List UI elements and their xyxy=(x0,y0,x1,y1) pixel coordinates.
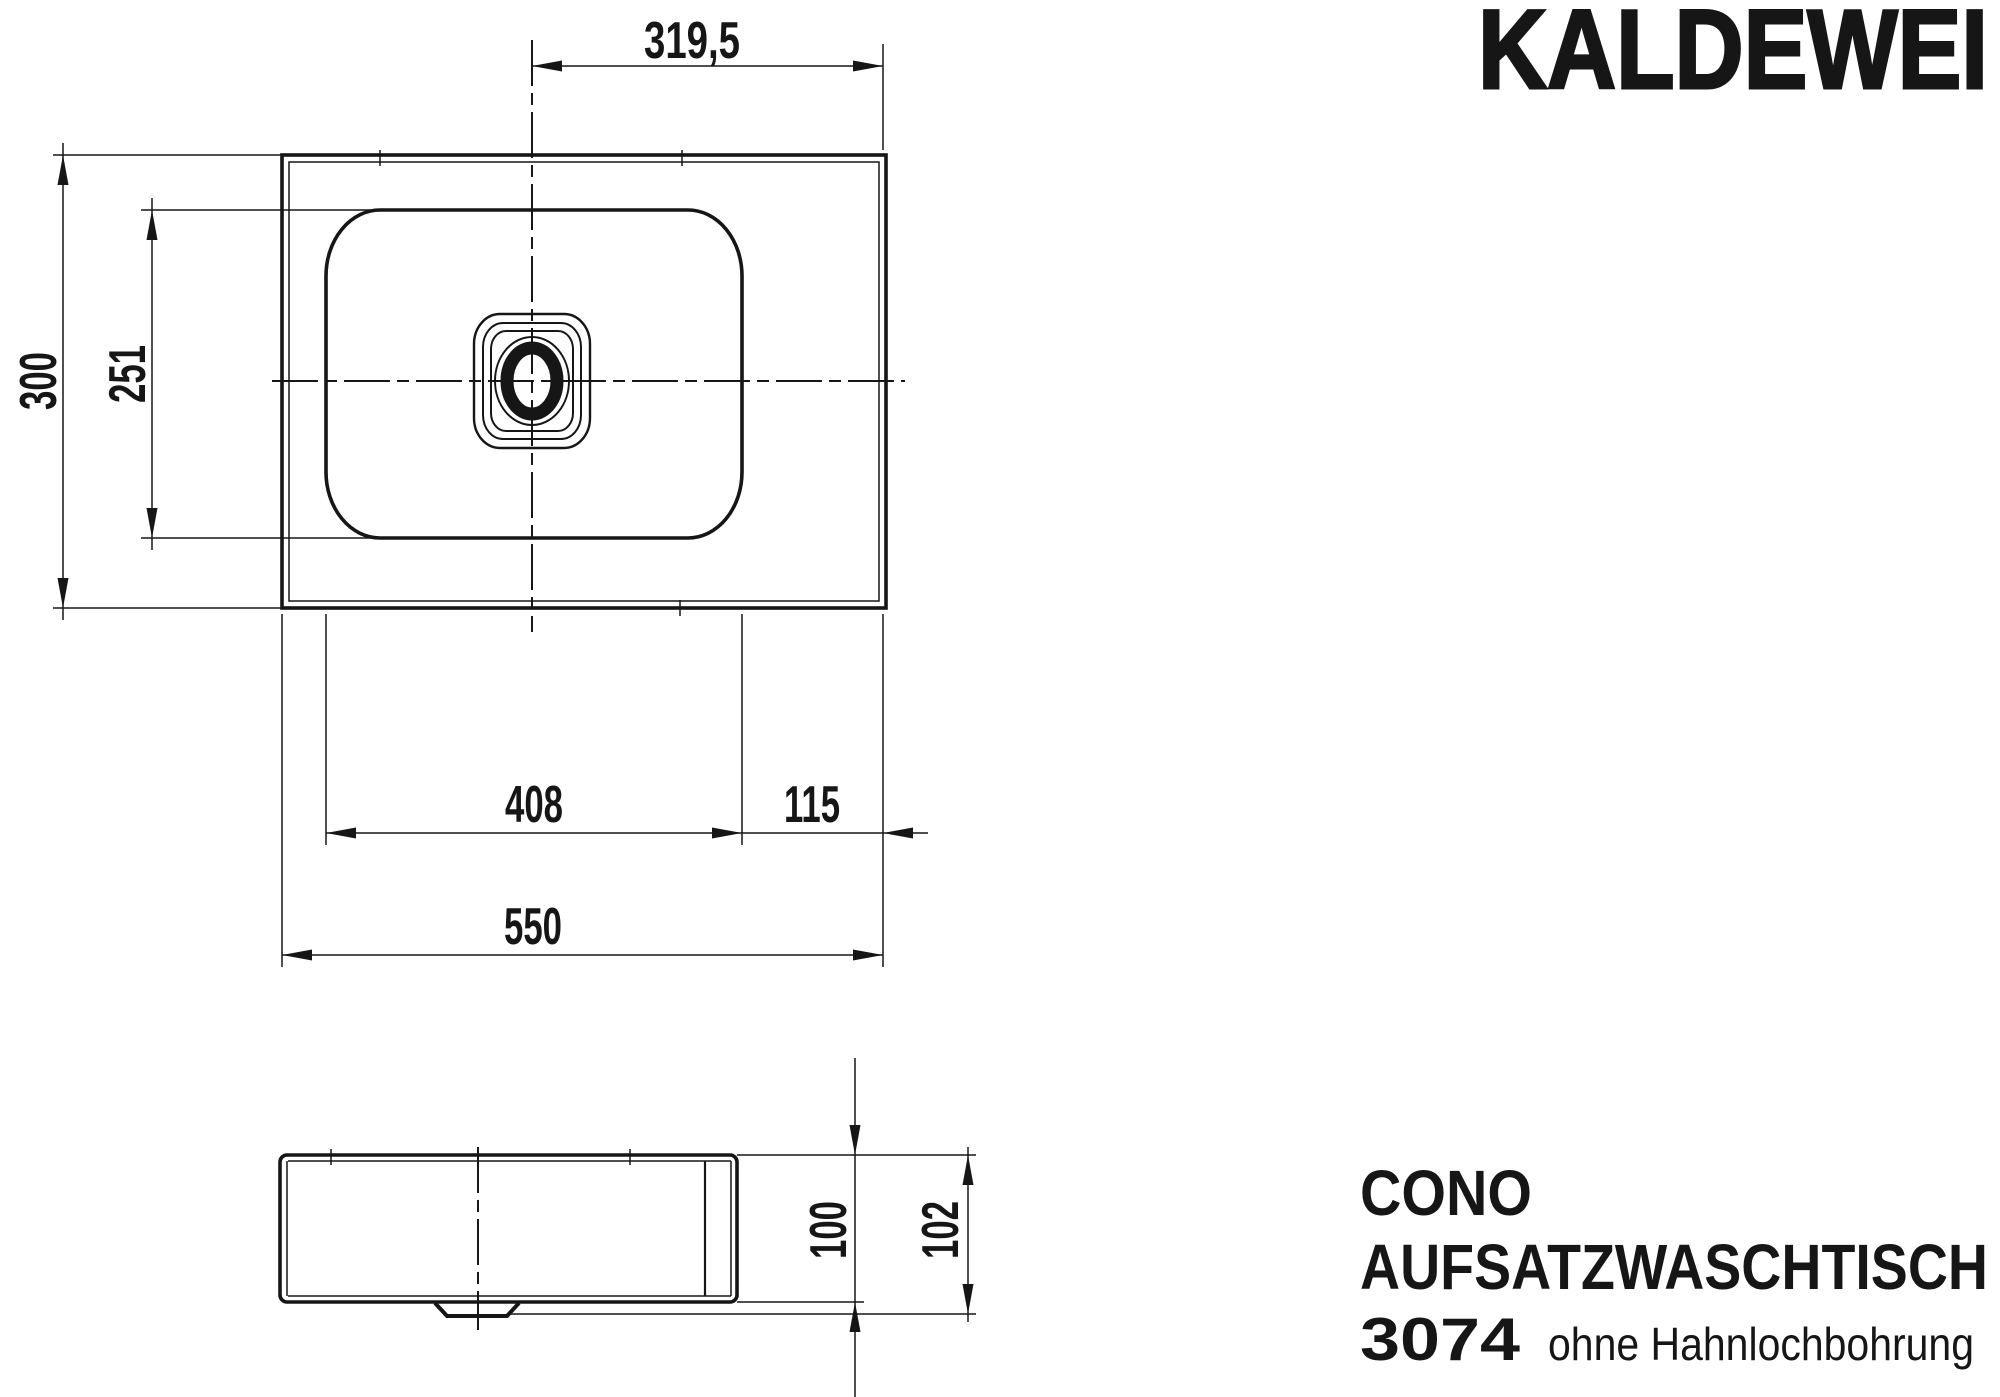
kaldewei-logo: KALDEWEI xyxy=(1478,0,1988,112)
product-series: CONO xyxy=(1360,1157,1532,1229)
technical-drawing: 319,5 300 251 408 115 550 100 102 KALDEW… xyxy=(0,0,2000,1397)
dim-label-total-height: 102 xyxy=(912,1201,970,1259)
dim-total-width xyxy=(282,950,883,961)
dim-basin-depth xyxy=(141,198,400,550)
arrow-up xyxy=(147,210,158,240)
arrow-left xyxy=(532,61,562,72)
datasheet-page: 319,5 300 251 408 115 550 100 102 KALDEW… xyxy=(0,0,2000,1397)
dim-total-depth xyxy=(53,143,282,620)
side-body xyxy=(280,1155,737,1302)
product-type: AUFSATZWASCHTISCH xyxy=(1360,1231,1988,1303)
arrow-down xyxy=(58,578,69,608)
arrow-up xyxy=(58,155,69,185)
plan-inner-basin xyxy=(326,210,742,538)
arrow-left xyxy=(326,828,356,839)
dim-label-body-height: 100 xyxy=(800,1201,858,1259)
product-variant: ohne Hahnlochbohrung xyxy=(1548,1318,1974,1370)
arrow-down xyxy=(963,1284,974,1314)
arrow-up xyxy=(963,1155,974,1185)
dim-label-drain-offset: 319,5 xyxy=(644,12,740,70)
arrow-left-115 xyxy=(883,828,913,839)
dim-label-basin-depth: 251 xyxy=(99,345,157,403)
arrow-right xyxy=(853,61,883,72)
arrow-down xyxy=(147,508,158,538)
arrow-right xyxy=(853,950,883,961)
arrow-down xyxy=(850,1125,861,1155)
side-view xyxy=(280,1058,976,1397)
arrow-left xyxy=(282,950,312,961)
side-edge-ticks xyxy=(331,1149,630,1165)
dim-label-right-rim-width: 115 xyxy=(784,776,840,834)
dim-label-basin-width: 408 xyxy=(505,776,563,834)
dim-label-total-width: 550 xyxy=(504,898,562,956)
title-block: CONO AUFSATZWASCHTISCH 3074 ohne Hahnloc… xyxy=(1360,1157,1988,1373)
product-model-number: 3074 xyxy=(1360,1306,1521,1373)
dim-label-total-depth: 300 xyxy=(10,352,68,410)
arrow-right xyxy=(712,828,742,839)
arrow-up xyxy=(850,1302,861,1332)
